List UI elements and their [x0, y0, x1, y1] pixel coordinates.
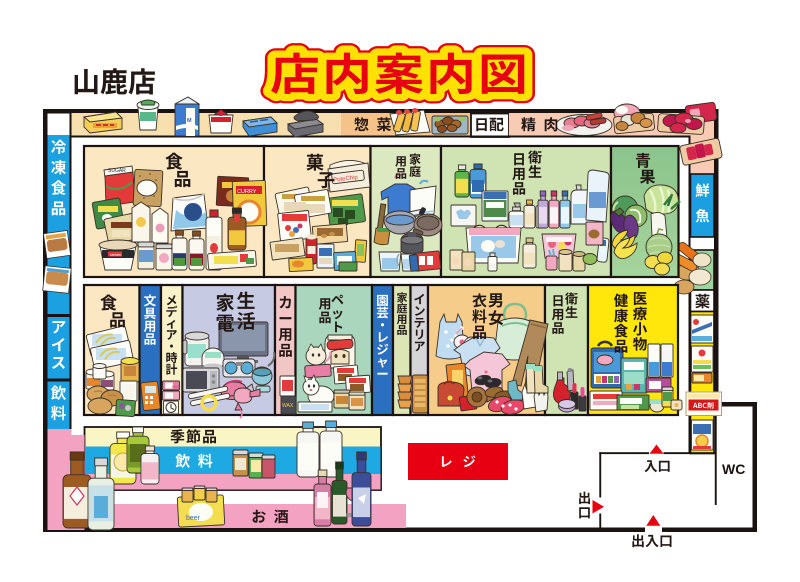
svg-text:M: M [187, 118, 192, 124]
svg-text:CURRY: CURRY [237, 189, 257, 195]
svg-text:WAX: WAX [282, 403, 294, 409]
svg-text:WC: WC [722, 461, 745, 477]
svg-text:ramen: ramen [110, 252, 121, 257]
svg-text:DVD: DVD [172, 384, 181, 389]
svg-text:SUGAR: SUGAR [108, 168, 126, 174]
svg-text:beer: beer [186, 515, 201, 522]
